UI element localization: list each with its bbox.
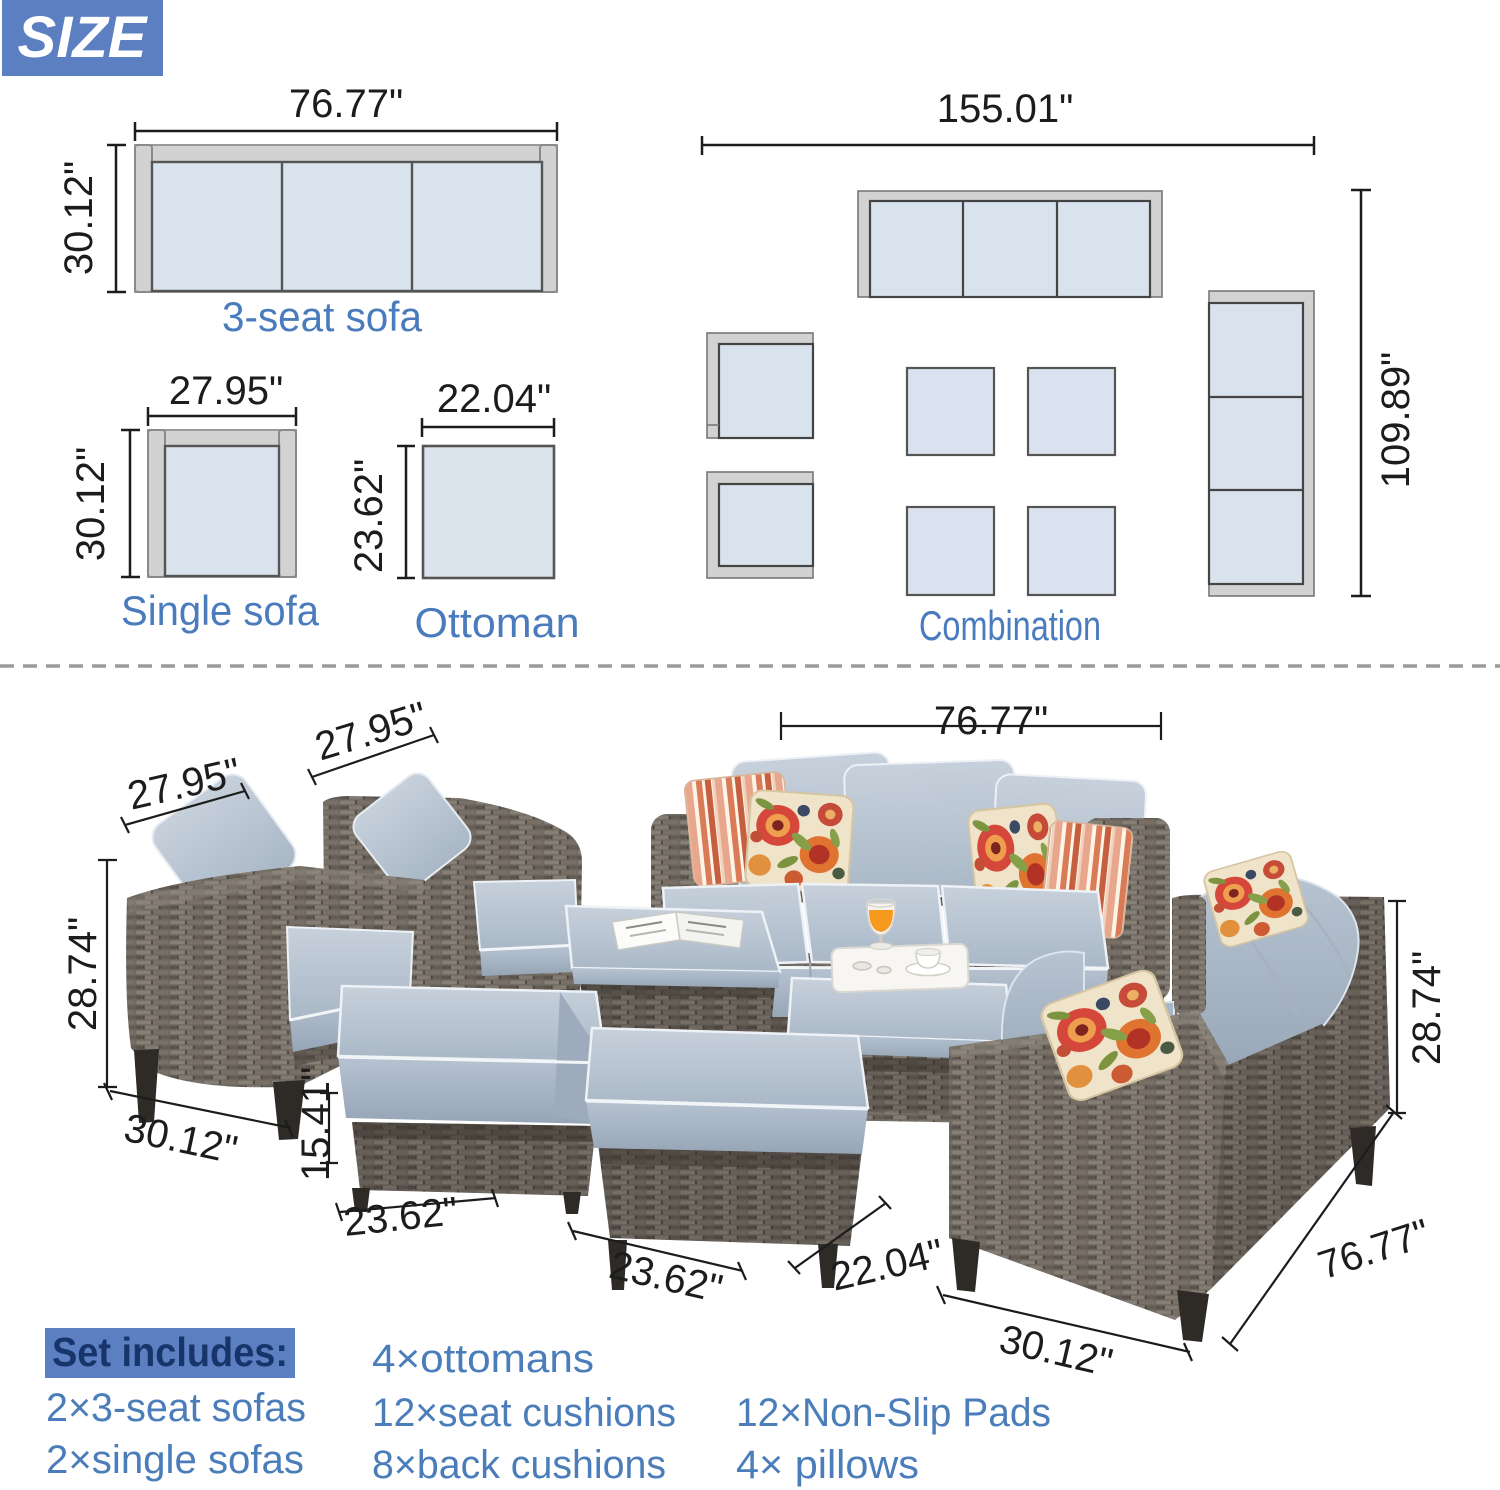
- svg-text:2×single sofas: 2×single sofas: [46, 1438, 304, 1482]
- svg-text:30.12": 30.12": [57, 161, 101, 275]
- svg-text:12×Non-Slip Pads: 12×Non-Slip Pads: [736, 1391, 1051, 1435]
- svg-text:28.74": 28.74": [61, 917, 105, 1031]
- svg-text:Ottoman: Ottoman: [415, 599, 580, 646]
- svg-text:30.12": 30.12": [120, 1106, 241, 1173]
- svg-text:3-seat sofa: 3-seat sofa: [222, 293, 423, 340]
- svg-text:76.77": 76.77": [289, 82, 403, 126]
- svg-text:Combination: Combination: [919, 602, 1101, 649]
- svg-text:27.95": 27.95": [310, 694, 432, 769]
- svg-text:109.89": 109.89": [1374, 352, 1418, 489]
- svg-text:4× pillows: 4× pillows: [736, 1443, 919, 1487]
- svg-text:30.12": 30.12": [995, 1317, 1116, 1386]
- svg-text:23.62": 23.62": [347, 459, 391, 573]
- svg-text:76.77": 76.77": [1313, 1211, 1435, 1288]
- svg-text:22.04": 22.04": [437, 377, 551, 421]
- svg-text:15.41": 15.41": [294, 1067, 338, 1181]
- svg-text:4×ottomans: 4×ottomans: [372, 1337, 594, 1381]
- svg-text:155.01": 155.01": [937, 87, 1074, 131]
- svg-text:27.95": 27.95": [169, 369, 283, 413]
- svg-text:Set includes:: Set includes:: [52, 1329, 288, 1375]
- svg-text:8×back cushions: 8×back cushions: [372, 1443, 666, 1487]
- svg-text:2×3-seat sofas: 2×3-seat sofas: [46, 1386, 306, 1430]
- svg-text:30.12": 30.12": [69, 447, 113, 561]
- svg-text:Single sofa: Single sofa: [121, 587, 320, 634]
- svg-text:76.77": 76.77": [934, 699, 1048, 743]
- svg-text:SIZE: SIZE: [18, 5, 149, 70]
- svg-text:28.74": 28.74": [1405, 951, 1449, 1065]
- svg-text:12×seat cushions: 12×seat cushions: [372, 1391, 676, 1435]
